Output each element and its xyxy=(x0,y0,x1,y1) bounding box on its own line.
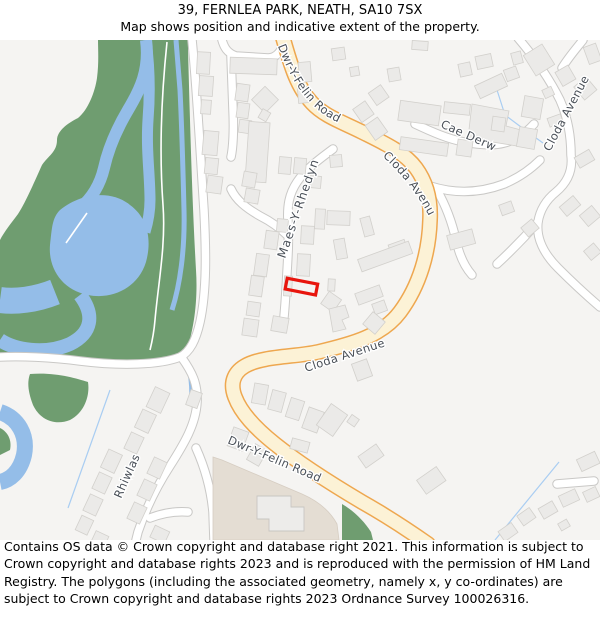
map-canvas: Dwr-Y-Felin Road Cloda Avenue Cae Derw C… xyxy=(0,40,600,540)
map-header: 39, FERNLEA PARK, NEATH, SA10 7SX Map sh… xyxy=(0,0,600,40)
page-subtitle: Map shows position and indicative extent… xyxy=(0,19,600,35)
copyright-text: Contains OS data © Crown copyright and d… xyxy=(4,538,597,607)
page-title: 39, FERNLEA PARK, NEATH, SA10 7SX xyxy=(0,3,600,19)
